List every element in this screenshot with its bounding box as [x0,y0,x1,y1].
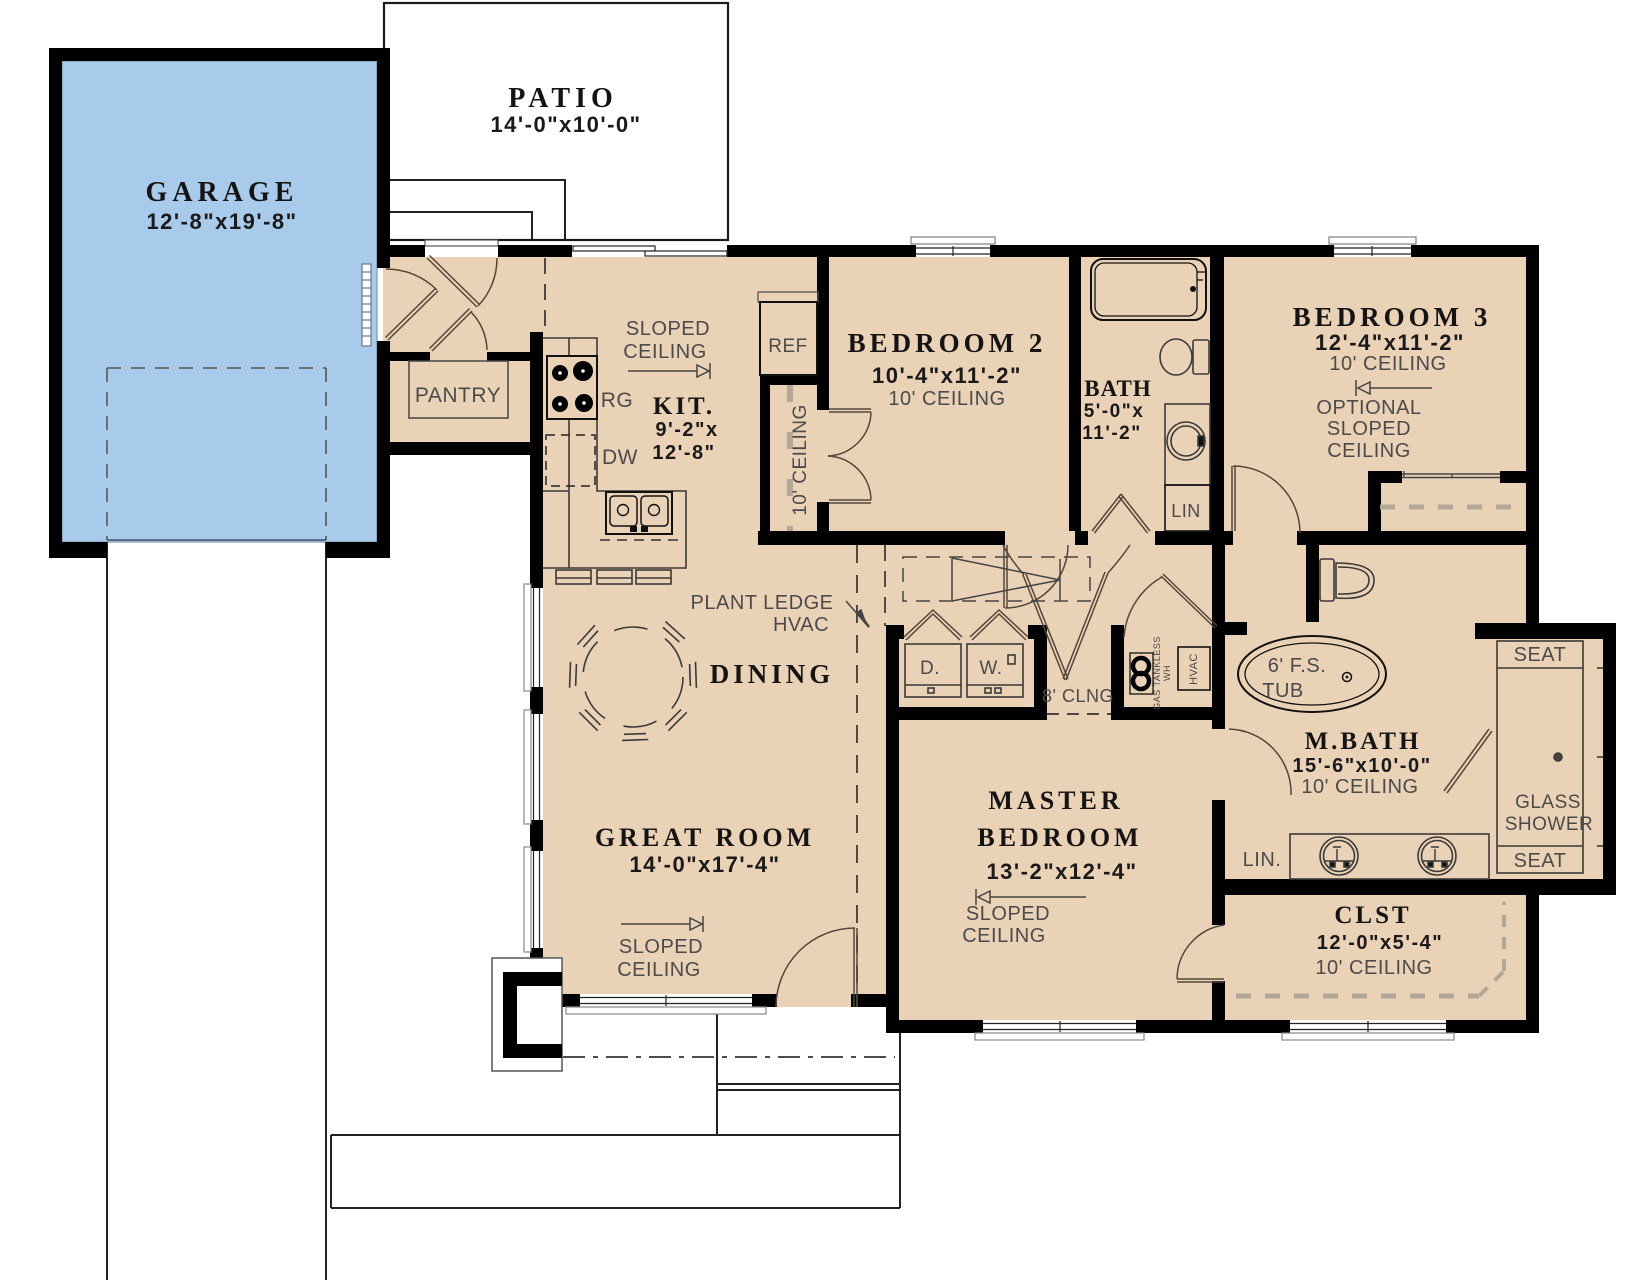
svg-text:PANTRY: PANTRY [415,384,501,407]
svg-text:OPTIONAL: OPTIONAL [1316,397,1421,419]
svg-text:CLST: CLST [1334,902,1411,929]
svg-text:PATIO: PATIO [508,83,618,114]
svg-text:SHOWER: SHOWER [1505,814,1594,835]
svg-text:GAS TANKLESS: GAS TANKLESS [1152,636,1162,710]
svg-text:SLOPED: SLOPED [966,903,1050,925]
svg-text:SLOPED: SLOPED [619,936,703,958]
svg-text:PLANT LEDGE: PLANT LEDGE [691,592,834,614]
svg-text:BATH: BATH [1084,376,1151,401]
svg-text:TUB: TUB [1262,680,1304,702]
svg-text:15'-6"x10'-0": 15'-6"x10'-0" [1292,755,1431,777]
svg-text:DW: DW [602,446,638,469]
svg-text:KIT.: KIT. [653,393,715,420]
svg-text:BEDROOM 2: BEDROOM 2 [848,328,1047,358]
svg-text:10' CEILING: 10' CEILING [888,388,1005,410]
svg-text:CEILING: CEILING [962,925,1046,947]
svg-text:BEDROOM 3: BEDROOM 3 [1293,302,1492,332]
svg-text:D.: D. [920,658,940,679]
svg-text:W.: W. [979,658,1002,679]
svg-text:10' CEILING: 10' CEILING [1315,957,1432,979]
svg-text:LIN.: LIN. [1243,849,1282,871]
svg-text:12'-0"x5'-4": 12'-0"x5'-4" [1317,932,1444,954]
svg-text:8' CLNG: 8' CLNG [1042,686,1114,706]
svg-text:12'-8"x19'-8": 12'-8"x19'-8" [146,209,297,234]
svg-text:GLASS: GLASS [1515,792,1581,813]
svg-text:10' CEILING: 10' CEILING [1329,353,1446,375]
svg-text:HVAC: HVAC [1188,653,1200,685]
svg-text:11'-2": 11'-2" [1082,423,1142,444]
svg-text:CEILING: CEILING [1327,440,1411,462]
svg-text:GREAT ROOM: GREAT ROOM [595,823,815,852]
svg-text:14'-0"x17'-4": 14'-0"x17'-4" [629,852,780,877]
svg-text:SLOPED: SLOPED [626,318,710,340]
svg-text:BEDROOM: BEDROOM [977,823,1142,852]
svg-text:6' F.S.: 6' F.S. [1268,655,1326,677]
svg-text:REF: REF [768,336,808,357]
svg-text:MASTER: MASTER [988,786,1123,815]
svg-text:SLOPED: SLOPED [1327,418,1411,440]
svg-text:LIN: LIN [1171,501,1201,521]
svg-text:10' CEILING: 10' CEILING [790,404,811,516]
svg-text:12'-4"x11'-2": 12'-4"x11'-2" [1315,330,1465,355]
svg-text:13'-2"x12'-4": 13'-2"x12'-4" [986,859,1137,884]
svg-text:CEILING: CEILING [623,341,707,363]
svg-text:SEAT: SEAT [1514,644,1567,666]
svg-text:10' CEILING: 10' CEILING [1301,776,1418,798]
svg-text:GARAGE: GARAGE [146,177,299,208]
svg-text:CEILING: CEILING [617,959,701,981]
svg-text:DINING: DINING [710,659,835,689]
svg-text:9'-2"x: 9'-2"x [655,419,718,441]
svg-text:M.BATH: M.BATH [1305,728,1422,755]
svg-text:WH: WH [1162,665,1172,681]
svg-text:HVAC: HVAC [773,614,829,636]
svg-text:12'-8": 12'-8" [652,442,715,464]
svg-text:RG: RG [601,389,634,412]
svg-text:10'-4"x11'-2": 10'-4"x11'-2" [872,363,1022,388]
svg-text:14'-0"x10'-0": 14'-0"x10'-0" [490,112,641,137]
svg-text:5'-0"x: 5'-0"x [1084,401,1145,422]
svg-text:SEAT: SEAT [1514,850,1567,872]
